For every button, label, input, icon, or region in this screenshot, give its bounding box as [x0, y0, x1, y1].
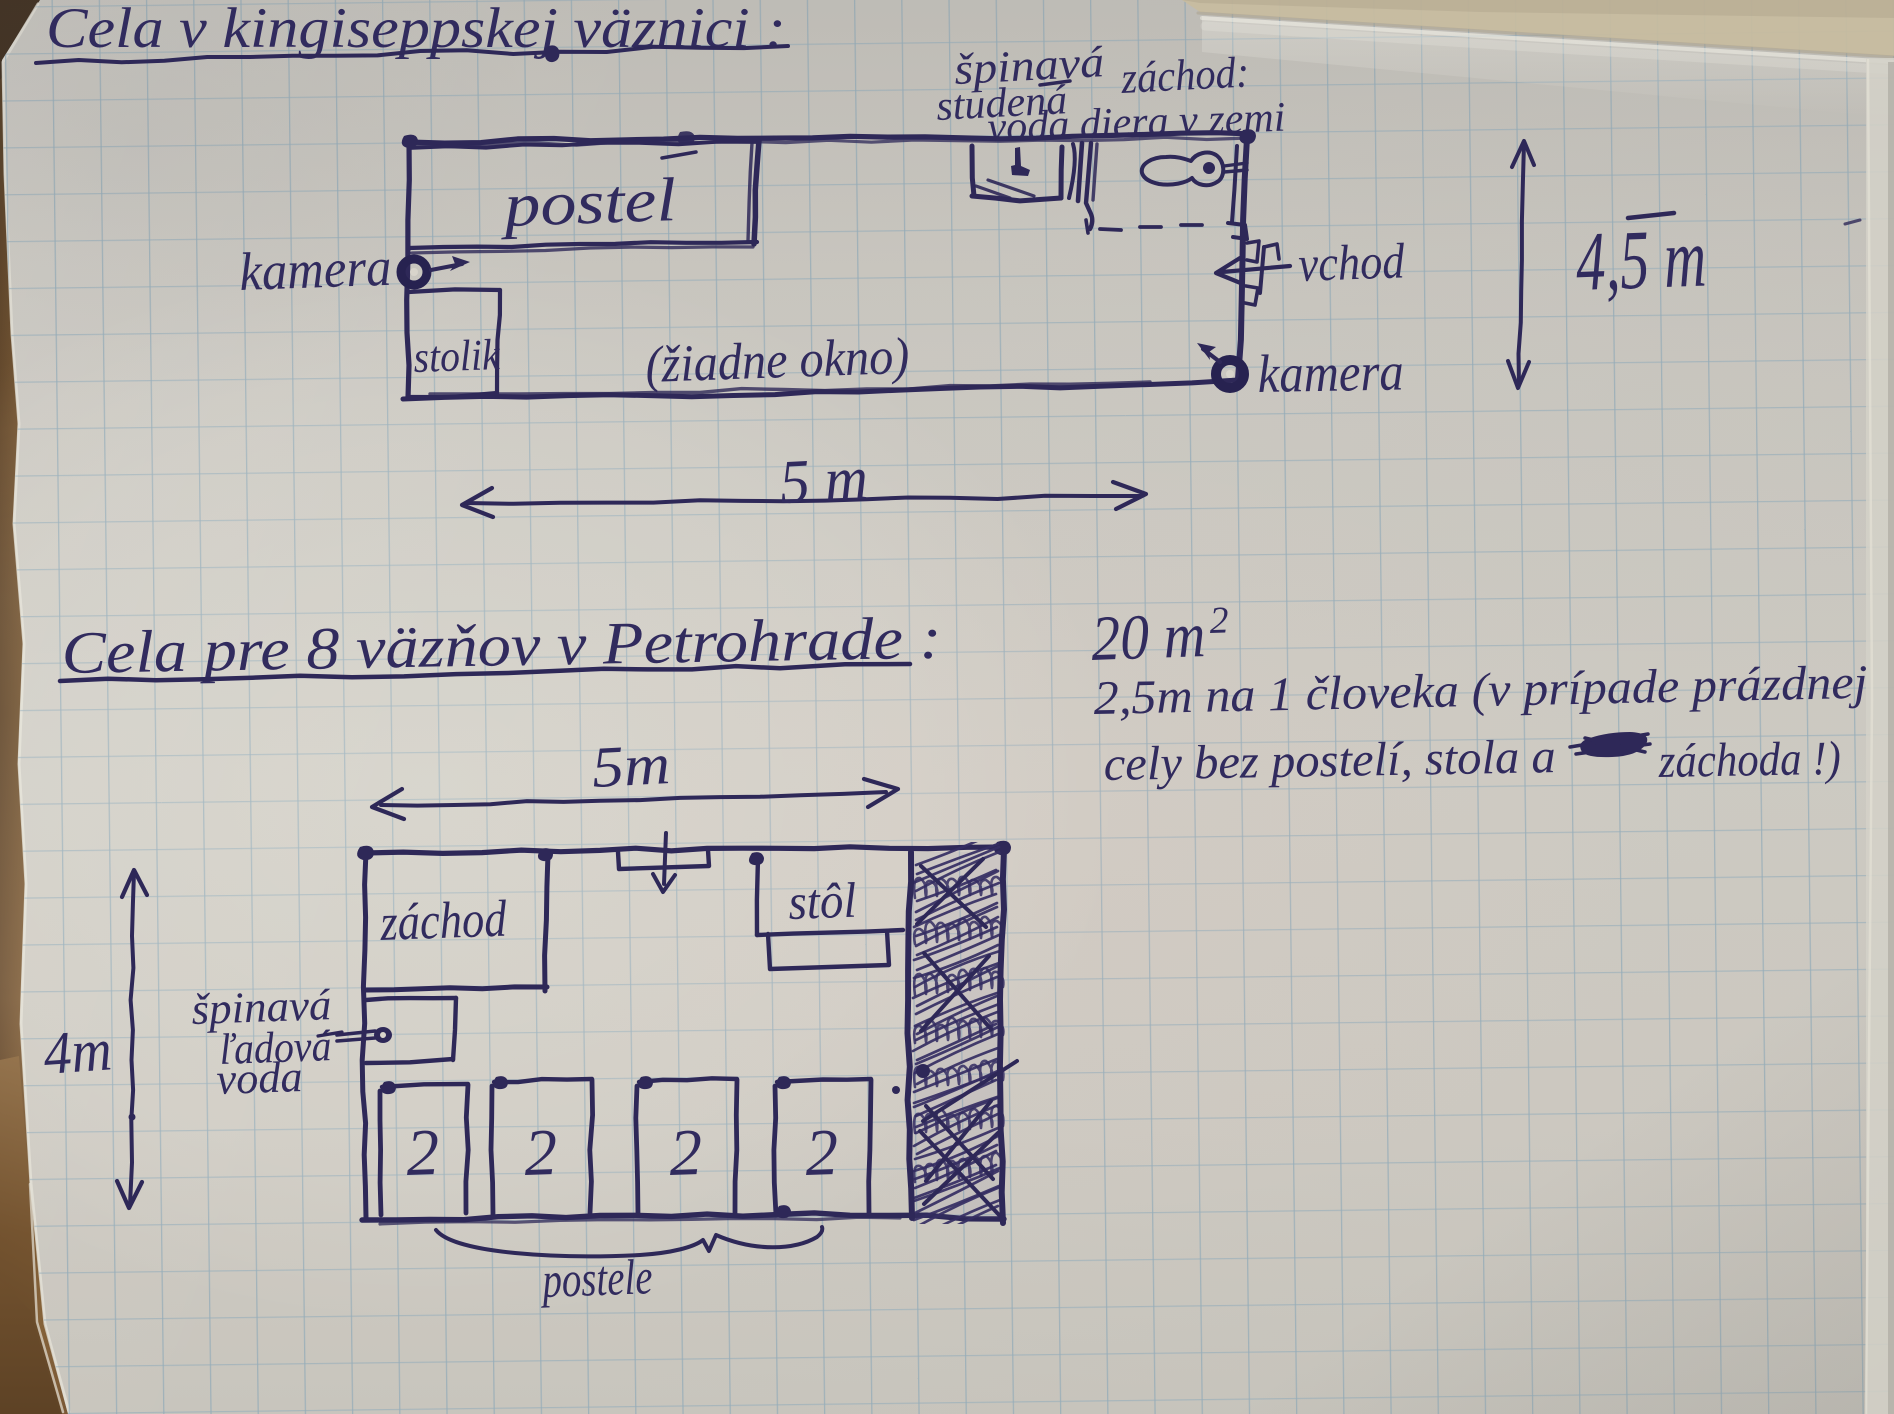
svg-text:postel: postel	[498, 166, 677, 240]
svg-text:záchod: záchod	[379, 891, 509, 952]
svg-text:záchoda !): záchoda !)	[1657, 732, 1841, 788]
svg-text:stôl: stôl	[787, 872, 857, 930]
svg-text:20 m: 20 m	[1090, 599, 1206, 674]
svg-text:2: 2	[1209, 599, 1229, 642]
svg-text:2: 2	[668, 1116, 704, 1190]
svg-text:2: 2	[405, 1116, 441, 1190]
svg-text:(žiadne okno): (žiadne okno)	[644, 328, 910, 394]
svg-text:5 m: 5 m	[778, 444, 869, 517]
svg-text:záchod:: záchod:	[1119, 47, 1250, 103]
svg-text:vchod: vchod	[1297, 232, 1406, 292]
svg-text:2: 2	[523, 1116, 559, 1190]
svg-text:4m: 4m	[41, 1016, 113, 1087]
svg-text:postele: postele	[539, 1248, 653, 1308]
svg-text:cely bez postelí, stola a: cely bez postelí, stola a	[1103, 730, 1556, 791]
svg-text:4,5 m: 4,5 m	[1574, 212, 1707, 309]
svg-text:5m: 5m	[590, 731, 671, 800]
svg-text:voda: voda	[216, 1052, 304, 1104]
svg-text:stolik: stolik	[413, 330, 502, 382]
svg-text:kamera: kamera	[1257, 341, 1404, 404]
svg-text:kamera: kamera	[238, 237, 392, 302]
svg-text:2: 2	[804, 1116, 840, 1190]
